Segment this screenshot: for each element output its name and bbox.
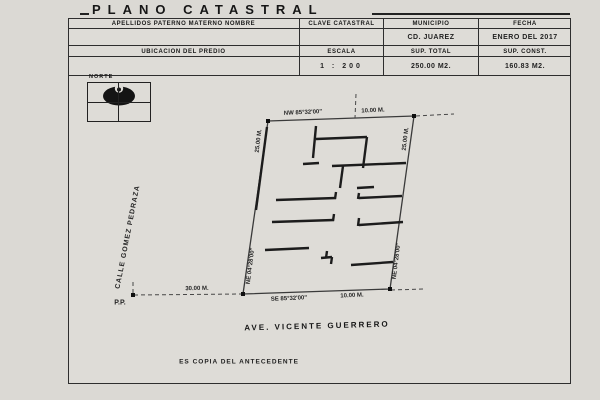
building-wall [332, 163, 406, 166]
building-wall [358, 218, 359, 226]
length-bottom-label: 10.00 M. [340, 292, 364, 299]
building-wall [359, 196, 402, 198]
building-wall [351, 262, 393, 265]
building-wall [340, 166, 343, 188]
lot-boundary [243, 116, 414, 294]
building-wall [276, 198, 336, 200]
building-wall [316, 137, 367, 139]
building-wall [331, 257, 332, 264]
cadastral-plan-sheet: PLANO CATASTRAL APELLIDOS PATERNO MATERN… [0, 0, 600, 400]
building-wall [272, 220, 334, 222]
tie-line [391, 289, 424, 290]
building-wall [359, 222, 403, 225]
tie-line [134, 294, 242, 295]
footer-note: ES COPIA DEL ANTECEDENTE [179, 359, 299, 366]
building-wall [265, 248, 309, 250]
survey-point-marker [131, 293, 135, 297]
building-wall [357, 187, 374, 188]
building-wall [303, 163, 319, 164]
building-wall [335, 192, 336, 199]
plot-drawing [0, 0, 600, 400]
survey-point-marker [388, 287, 392, 291]
survey-point-marker [266, 119, 270, 123]
length-top-label: 10.00 M. [361, 107, 385, 114]
building-wall [313, 126, 316, 158]
building-wall [333, 214, 334, 221]
pp-point-label: P.P. [114, 300, 125, 307]
offset-length-label: 30.00 M. [185, 286, 208, 292]
building-wall [363, 137, 367, 168]
survey-point-marker [412, 114, 416, 118]
building-wall [358, 193, 359, 199]
survey-point-marker [241, 292, 245, 296]
building-wall [321, 257, 332, 258]
tie-line [355, 94, 356, 118]
tie-line [416, 114, 454, 116]
